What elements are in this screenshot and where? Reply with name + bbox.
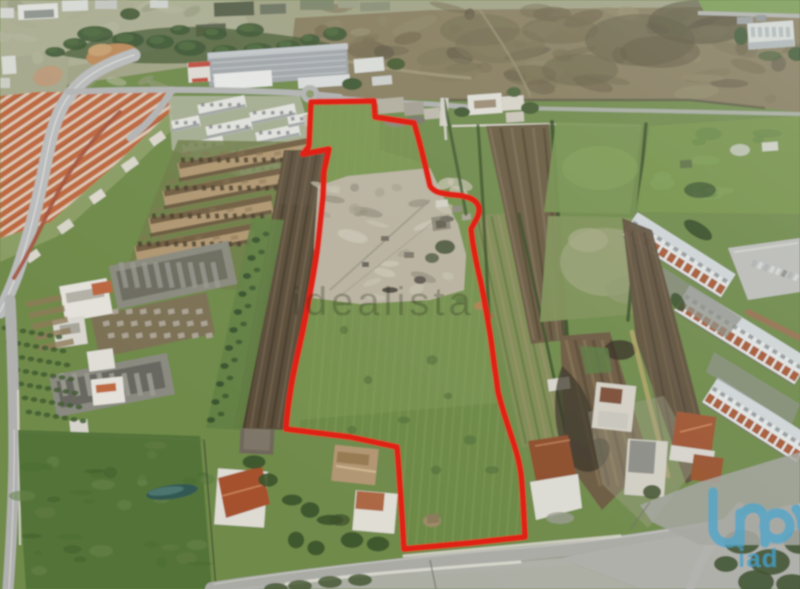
svg-text:iad: iad	[738, 543, 779, 573]
svg-text:idealista: idealista	[292, 280, 475, 324]
